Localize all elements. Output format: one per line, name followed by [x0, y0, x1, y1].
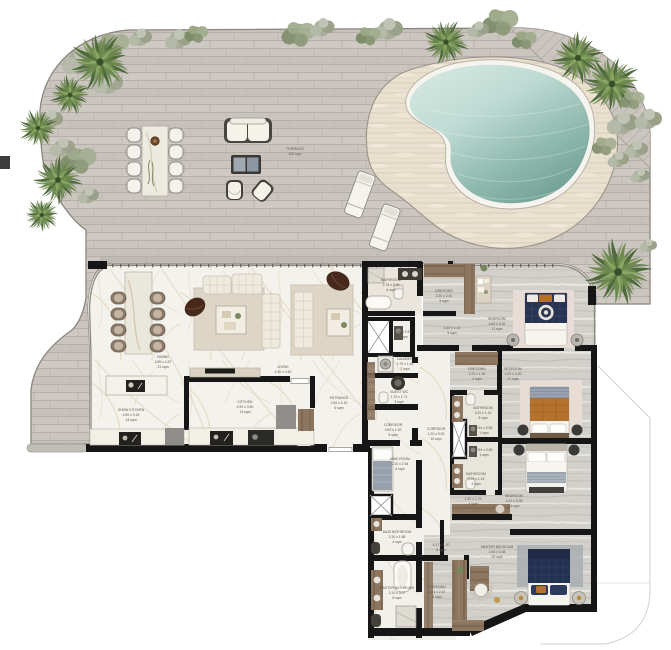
svg-text:6 sqm: 6 sqm	[395, 467, 404, 471]
svg-text:4.40 x 1.10: 4.40 x 1.10	[444, 326, 461, 330]
svg-text:BEDROOM: BEDROOM	[488, 317, 506, 321]
svg-text:BEDROOM: BEDROOM	[504, 367, 522, 371]
svg-text:DRESSING: DRESSING	[428, 585, 446, 589]
svg-text:4.30 x 4.60: 4.30 x 4.60	[275, 370, 292, 374]
svg-text:4 sqm: 4 sqm	[468, 502, 477, 506]
svg-text:8 sqm: 8 sqm	[432, 595, 441, 599]
svg-text:226 sqm: 226 sqm	[288, 152, 301, 156]
svg-text:3 sqm: 3 sqm	[394, 400, 403, 404]
svg-text:2.20 x 2.61: 2.20 x 2.61	[436, 294, 453, 298]
svg-text:14 sqm: 14 sqm	[239, 410, 250, 414]
svg-text:DINING: DINING	[157, 355, 169, 359]
svg-text:1.20 x 1.79: 1.20 x 1.79	[465, 497, 482, 501]
svg-text:CORRIDOR: CORRIDOR	[384, 423, 403, 427]
svg-text:6 sqm: 6 sqm	[392, 596, 401, 600]
svg-text:BATHROOM: BATHROOM	[381, 278, 401, 282]
svg-text:2.10 x 3.07: 2.10 x 3.07	[389, 591, 406, 595]
svg-text:5 sqm: 5 sqm	[447, 331, 456, 335]
svg-text:4 sqm: 4 sqm	[392, 540, 401, 544]
svg-text:4.50 x 3.15: 4.50 x 3.15	[123, 413, 140, 417]
svg-text:CORRIDOR: CORRIDOR	[427, 427, 446, 431]
svg-text:14 sqm: 14 sqm	[125, 418, 136, 422]
svg-text:3.45 x 3.08: 3.45 x 3.08	[489, 550, 506, 554]
svg-text:1.45 x 0.93: 1.45 x 0.93	[395, 330, 412, 334]
svg-text:SHOW KITCHEN: SHOW KITCHEN	[118, 408, 145, 412]
svg-text:10 sqm: 10 sqm	[430, 437, 441, 441]
svg-text:4.90 x 3.60: 4.90 x 3.60	[237, 405, 254, 409]
svg-text:MAID BATHROOM: MAID BATHROOM	[383, 530, 412, 534]
svg-text:MASTER BEDROOM: MASTER BEDROOM	[481, 545, 514, 549]
svg-text:1.70 x 1.71: 1.70 x 1.71	[391, 395, 408, 399]
svg-text:3.20 x 1.15: 3.20 x 1.15	[475, 411, 492, 415]
svg-text:2.10 x 2.64: 2.10 x 2.64	[392, 462, 409, 466]
svg-text:2.56 x 5.15: 2.56 x 5.15	[331, 401, 348, 405]
svg-text:ENTRANCE: ENTRANCE	[330, 396, 349, 400]
svg-text:13 sqm: 13 sqm	[508, 504, 519, 508]
svg-text:DRESSING: DRESSING	[435, 289, 453, 293]
svg-text:1 sqm: 1 sqm	[479, 431, 488, 435]
svg-text:4 sqm: 4 sqm	[472, 377, 481, 381]
svg-text:1.83 x 2.67: 1.83 x 2.67	[429, 590, 446, 594]
svg-text:3.50 x 1.20: 3.50 x 1.20	[385, 428, 402, 432]
svg-text:1 sqm: 1 sqm	[479, 453, 488, 457]
svg-text:11 sqm: 11 sqm	[492, 327, 503, 331]
svg-text:4.20 x 4.20: 4.20 x 4.20	[505, 372, 522, 376]
svg-text:0.94 x 0.65: 0.94 x 0.65	[476, 448, 493, 452]
svg-text:GUEST WC: GUEST WC	[390, 390, 409, 394]
svg-text:BATHROOM: BATHROOM	[473, 406, 493, 410]
svg-text:TERRACE: TERRACE	[286, 147, 305, 151]
svg-text:1.20 x 9.26: 1.20 x 9.26	[428, 432, 445, 436]
svg-text:20 sqm: 20 sqm	[491, 555, 502, 559]
svg-text:LIVING: LIVING	[277, 365, 288, 369]
svg-text:4 sqm: 4 sqm	[471, 482, 480, 486]
svg-text:17 sqm: 17 sqm	[507, 377, 518, 381]
svg-text:3.20 x 1.15: 3.20 x 1.15	[468, 477, 485, 481]
svg-text:21 sqm: 21 sqm	[157, 365, 168, 369]
svg-text:BATHROOM: BATHROOM	[466, 472, 486, 476]
svg-text:5 sqm: 5 sqm	[439, 299, 448, 303]
svg-text:BEDROOM: BEDROOM	[505, 494, 523, 498]
svg-text:2.75 x 2.45: 2.75 x 2.45	[383, 283, 400, 287]
svg-text:MASTER BATHROOM: MASTER BATHROOM	[380, 586, 415, 590]
svg-text:5 sqm: 5 sqm	[388, 433, 397, 437]
svg-text:0.94 x 0.65: 0.94 x 0.65	[476, 426, 493, 430]
svg-text:1.70 x 1.45: 1.70 x 1.45	[397, 362, 414, 366]
svg-text:1 sqm: 1 sqm	[398, 335, 407, 339]
svg-text:DRESSING: DRESSING	[468, 367, 486, 371]
svg-text:4.60 x 3.32: 4.60 x 3.32	[489, 322, 506, 326]
svg-text:4.50 x 4.57: 4.50 x 4.57	[155, 360, 172, 364]
svg-text:MAID ROOM: MAID ROOM	[390, 457, 410, 461]
svg-text:KITCHEN: KITCHEN	[238, 400, 253, 404]
svg-text:4.20 x 3.35: 4.20 x 3.35	[506, 499, 523, 503]
svg-text:LAUNDRY: LAUNDRY	[397, 357, 414, 361]
svg-text:6 sqm: 6 sqm	[334, 406, 343, 410]
svg-text:5 sqm: 5 sqm	[436, 548, 445, 552]
svg-text:3 sqm: 3 sqm	[478, 416, 487, 420]
svg-text:2.20 x 1.40: 2.20 x 1.40	[469, 372, 486, 376]
svg-text:2.10 x 1.86: 2.10 x 1.86	[389, 535, 406, 539]
svg-text:2 sqm: 2 sqm	[400, 367, 409, 371]
svg-text:4.17 x 1.20: 4.17 x 1.20	[433, 543, 450, 547]
svg-text:6 sqm: 6 sqm	[386, 288, 395, 292]
